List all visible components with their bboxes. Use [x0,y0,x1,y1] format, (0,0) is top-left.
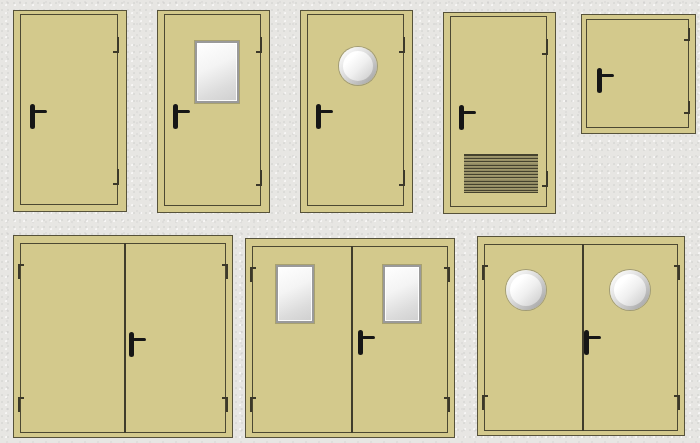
hinge-foot [684,39,688,41]
hinge-foot [222,397,226,399]
vision-panel-window [195,41,239,103]
hinge-icon [403,37,405,53]
hinge-icon [546,171,548,187]
hinge-icon [226,397,228,412]
hinge-foot [256,184,260,186]
door-handle-lever [34,110,47,113]
hinge-foot [113,51,117,53]
hinge-foot [252,397,256,399]
hinge-foot [113,183,117,185]
hinge-foot [674,265,678,267]
hinge-foot [542,53,546,55]
door-handle-lever [588,336,601,339]
hinge-foot [674,395,678,397]
vision-panel-window [383,265,421,323]
hinge-foot [222,264,226,266]
porthole-glass [343,51,373,81]
hinge-foot [444,397,448,399]
door-single-louver [443,12,556,214]
hinge-foot [684,112,688,114]
door-handle-plate [173,104,178,129]
hinge-icon [403,170,405,186]
door-handle-plate [584,330,589,355]
door-hatch [581,14,696,134]
door-handle-lever [320,110,333,113]
door-handle-plate [316,104,321,129]
hinge-icon [260,170,262,186]
hinge-icon [678,265,680,280]
hinge-foot [20,397,24,399]
door-handle-plate [459,105,464,130]
hinge-foot [444,267,448,269]
hinge-icon [546,39,548,55]
hinge-icon [688,28,690,41]
vision-panel-window [276,265,314,323]
door-handle-plate [597,68,602,93]
door-handle-lever [177,110,190,113]
door-single-porthole [300,10,413,213]
door-handle-lever [601,74,614,77]
door-leaf-outline [484,244,678,431]
door-handle-plate [30,104,35,129]
door-double-plain [13,235,233,438]
door-catalog-canvas [0,0,700,443]
door-leaf-divider [124,243,126,433]
hinge-icon [482,395,484,410]
porthole-glass [510,274,542,306]
hinge-icon [226,264,228,279]
door-handle-plate [358,330,363,355]
porthole-window [610,270,650,310]
hinge-icon [688,101,690,114]
door-handle-lever [463,111,476,114]
hinge-icon [250,267,252,282]
porthole-window [506,270,546,310]
hinge-icon [18,264,20,279]
hinge-icon [678,395,680,410]
hinge-foot [252,267,256,269]
hinge-foot [542,185,546,187]
door-single-plain [13,10,127,212]
hinge-icon [482,265,484,280]
door-handle-lever [362,336,375,339]
door-double-porthole [477,236,685,436]
hinge-icon [260,37,262,53]
door-handle-plate [129,332,134,357]
hinge-icon [448,397,450,412]
door-leaf-outline [20,243,226,433]
door-handle-lever [133,338,146,341]
hinge-icon [448,267,450,282]
hinge-foot [399,184,403,186]
door-double-window [245,238,455,438]
hinge-foot [484,395,488,397]
porthole-glass [614,274,646,306]
hinge-icon [18,397,20,412]
hinge-foot [20,264,24,266]
door-leaf-divider [351,246,353,433]
ventilation-grille [464,154,538,193]
hinge-icon [117,169,119,185]
hinge-foot [256,51,260,53]
porthole-window [339,47,377,85]
hinge-foot [484,265,488,267]
door-single-window [157,10,270,213]
hinge-icon [117,37,119,53]
hinge-foot [399,51,403,53]
hinge-icon [250,397,252,412]
